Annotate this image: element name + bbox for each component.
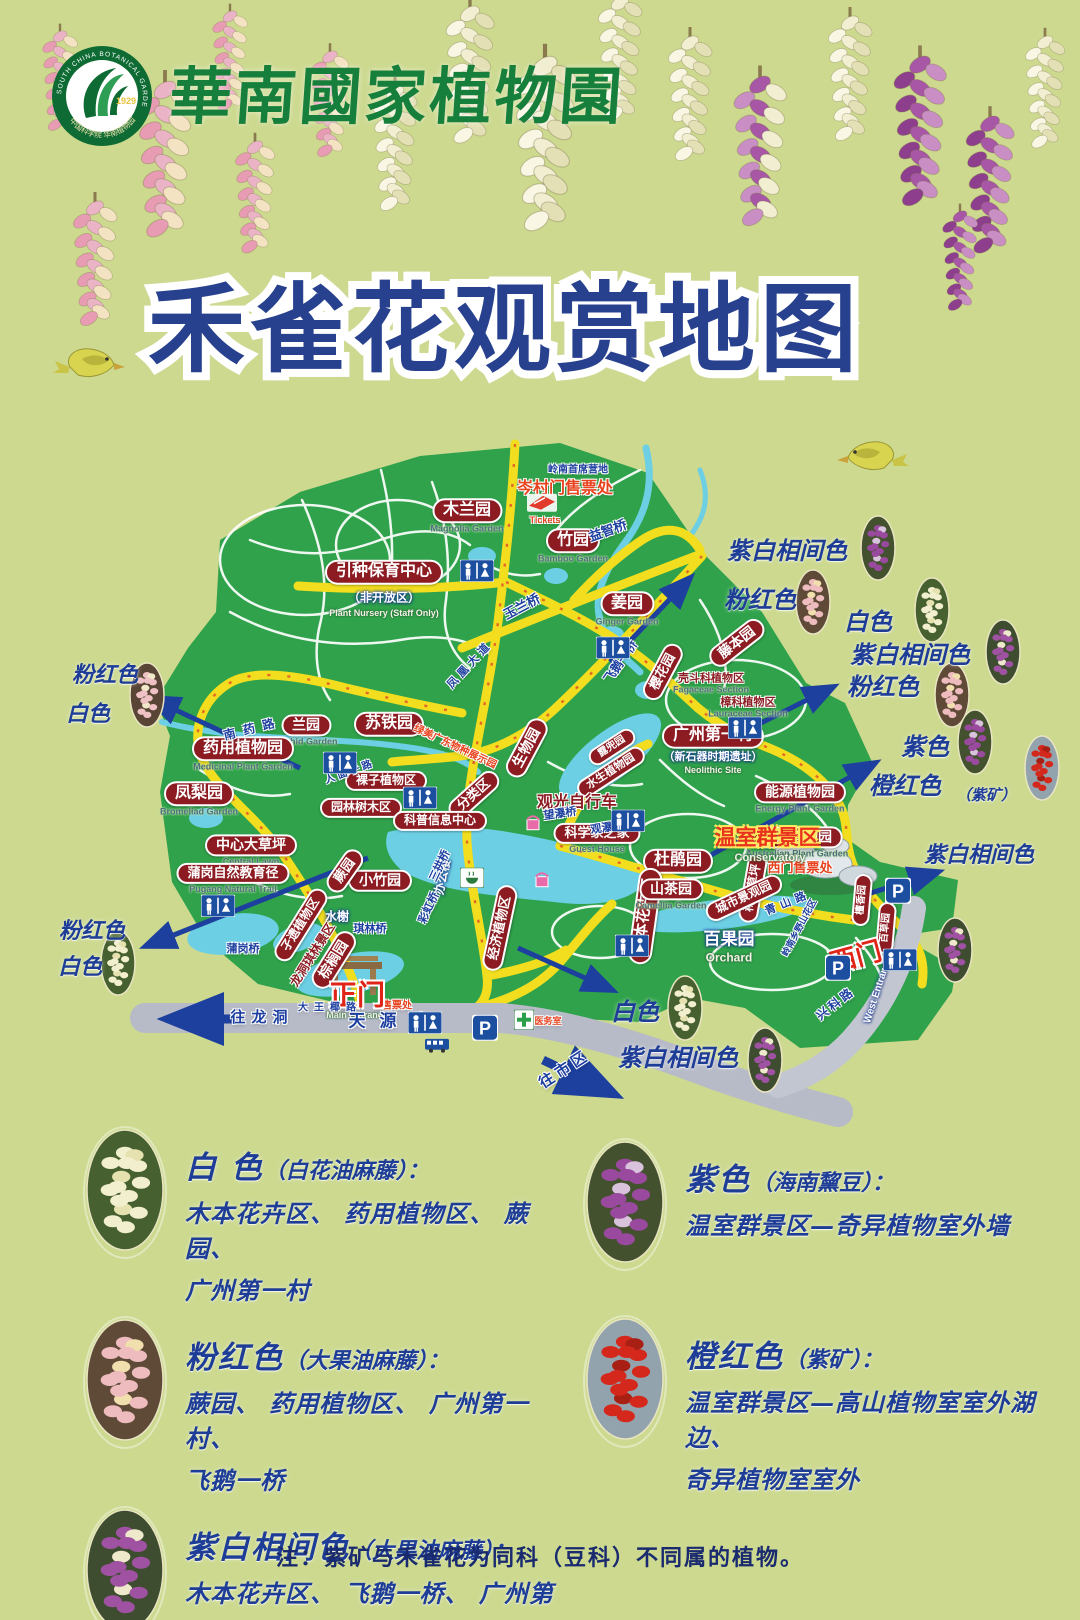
map-label-pill-text: 藤本园: [705, 614, 769, 671]
map-label-note: 粉红色: [72, 663, 138, 687]
flower-photo-red: [587, 1319, 663, 1439]
toilet-icon: [611, 810, 645, 837]
toilet-icon: [728, 717, 762, 744]
legend-color-word: 白 色: [185, 1150, 264, 1186]
legend-locations: 温室群景区—奇异植物室外墙: [685, 1206, 1010, 1241]
legend-text: 粉红色（大果油麻藤）：蕨园、 药用植物区、 广州第一村、飞鹅一桥: [185, 1318, 565, 1496]
map-label-english: Guest House: [553, 845, 640, 855]
legend-color-word: 橙红色: [685, 1339, 784, 1375]
map-label-pill-text: 山茶园: [639, 878, 703, 900]
map-label-pill: 姜园Ginger Garden: [595, 591, 658, 626]
toilet-icon: [403, 787, 437, 814]
map-label-note: 紫白相间色: [727, 538, 847, 564]
legend-locations: 一村、 西门停车场: [185, 1616, 554, 1620]
map-label-pill: 生物园: [502, 714, 552, 781]
parking-icon: P: [885, 878, 911, 909]
map-label-note: 紫白相间色: [924, 843, 1034, 867]
legend-flower-photo: [85, 1318, 165, 1447]
clinic-icon: [514, 1010, 534, 1035]
map-label-pill: 小竹园: [348, 870, 412, 892]
map-label-pill: 蒲岗自然教育径Pugang Natural Trail: [176, 863, 289, 895]
legend-row: 粉红色（大果油麻藤）：蕨园、 药用植物区、 广州第一村、飞鹅一桥: [85, 1318, 565, 1496]
flower-photo-pink: [87, 1320, 163, 1440]
map-label-blue: 兴科路: [814, 985, 858, 1023]
toilet-icon: [408, 1012, 442, 1039]
map-label-english: Ginger Garden: [595, 617, 658, 627]
map-label-note: 粉红色: [724, 587, 796, 613]
legend-text: 白 色（白花油麻藤）：木本花卉区、 药用植物区、 蕨园、广州第一村: [185, 1128, 565, 1306]
map-label-pill: 园林树木区: [320, 798, 402, 818]
map-label-pill-text: 中心大草坪: [205, 834, 297, 856]
legend-text: 紫色（海南黧豆）：温室群景区—奇异植物室外墙: [685, 1140, 1010, 1241]
flower-photo-purple: [587, 1142, 663, 1262]
parking-icon: P: [472, 1015, 498, 1046]
map-label-pill: 药用植物园Medicinal Plant Garden: [192, 736, 294, 771]
flower-photo-white: [87, 1130, 163, 1250]
map-label-red: 壳斗科植物区Fagaceae Section: [673, 673, 749, 696]
legend-locations: 广州第一村: [185, 1271, 565, 1306]
map-label-white: （非开放区）: [348, 591, 420, 604]
map-label-orange: 医务室: [534, 1017, 561, 1027]
poster: 木兰园Magnolia Garden竹园Bamboo Garden姜园Ginge…: [0, 0, 1080, 1620]
map-label-cons: 温室群景区: [715, 826, 820, 849]
map-label-note: 橙红色: [869, 773, 941, 799]
map-label-pill: 经济植物区: [481, 883, 520, 973]
map-label-pill-text: 能源植物园: [754, 781, 846, 803]
legend-row: 白 色（白花油麻藤）：木本花卉区、 药用植物区、 蕨园、广州第一村: [85, 1128, 565, 1306]
map-label-blue: 琪林桥: [354, 923, 387, 935]
legend-right-column: 紫色（海南黧豆）：温室群景区—奇异植物室外墙橙红色（紫矿）：温室群景区—高山植物…: [585, 1140, 1065, 1507]
map-label-english: Medicinal Plant Garden: [192, 762, 294, 772]
svg-text:1929: 1929: [116, 96, 136, 106]
map-label-pill-text: 姜园: [600, 591, 654, 616]
map-label-note: 紫白相间色: [850, 642, 970, 668]
legend-species: （紫矿）：: [784, 1347, 883, 1373]
legend-species: （白花油麻藤）：: [264, 1158, 429, 1184]
parking-icon: P: [825, 955, 851, 986]
map-label-note: （紫矿）: [956, 787, 1016, 804]
map-label-english: Pugang Natural Trail: [176, 885, 289, 895]
map-label-pill-text: 园林树木区: [320, 798, 402, 818]
map-label-pill-text: 凤梨园: [164, 781, 234, 806]
map-label-pill-text: 檀香园: [851, 873, 873, 926]
toilet-icon: [460, 560, 494, 587]
map-label-blue: 往龙洞: [230, 1010, 293, 1027]
shop-icon: [526, 815, 540, 836]
map-label-note: 白色: [611, 999, 659, 1025]
legend-flower-photo: [585, 1317, 665, 1446]
map-label-english: Energy Plant Garden: [754, 805, 846, 815]
map-label-english: Camellia Garden: [635, 902, 706, 912]
map-label-english: Bromeliad Garden: [160, 807, 238, 817]
ticket-icon: [525, 492, 559, 519]
map-label-blue: 彩虹桥: [417, 890, 442, 925]
garden-brand-title: 華南國家植物園: [167, 46, 628, 136]
toilet-icon: [596, 637, 630, 664]
map-label-pill-text: 引种保育中心: [325, 560, 443, 585]
map-label-engw: Conservatory: [735, 852, 806, 864]
map-label-note: 粉红色: [847, 674, 919, 700]
map-label-engw: Neolithic Site: [684, 766, 741, 776]
map-label-note: 紫色: [901, 734, 949, 760]
map-label-engw: Plant Nursery (Staff Only): [329, 609, 439, 619]
map-label-blue: 大王椰路: [298, 1003, 362, 1014]
map-label-pill-text: 兰园: [281, 714, 331, 736]
map-label-pill: 山茶园Camellia Garden: [635, 878, 706, 911]
page-title-text: 禾雀花观赏地图: [0, 250, 1010, 391]
map-label-blue: 凤凰大道: [445, 639, 495, 691]
map-label-note: 白色: [844, 609, 892, 635]
legend-locations: 木本花卉区、 药用植物区、 蕨园、: [185, 1194, 565, 1264]
map-label-note: 紫白相间色: [618, 1045, 738, 1071]
footnote: 注：紫矿与禾雀花为同科（豆科）不同属的植物。: [0, 1540, 1080, 1572]
map-label-pill: 木兰园Magnolia Garden: [430, 498, 503, 533]
map-label-pill-text: 经济植物区: [481, 883, 520, 973]
legend-species: （海南黧豆）：: [751, 1170, 894, 1196]
legend-color-word: 粉红色: [185, 1340, 284, 1376]
map-label-blue: 蒲岗桥: [227, 943, 260, 955]
legend-species: （大果油麻藤）：: [284, 1348, 449, 1374]
map-label-note: 白色: [66, 702, 110, 726]
map-label-pill: 科普信息中心: [393, 811, 487, 831]
map-label-english: Bamboo Garden: [538, 554, 608, 564]
toilet-icon: [323, 752, 357, 779]
legend-locations: 飞鹅一桥: [185, 1461, 565, 1496]
map-label-pill: 檀香园: [851, 873, 873, 926]
map-label-pill-text: 木兰园: [432, 498, 502, 523]
legend-color-word: 紫色: [685, 1162, 751, 1198]
shop-icon: [535, 872, 549, 893]
svg-text:P: P: [479, 1019, 491, 1039]
tea-icon: [460, 868, 484, 893]
map-label-engw: Orchard: [706, 951, 753, 964]
map-label-english: Magnolia Garden: [430, 524, 503, 534]
legend-locations: 温室群景区—高山植物室室外湖边、: [685, 1383, 1065, 1453]
map-label-note: 白色: [58, 955, 102, 979]
map-label-white: （新石器时期遗址）: [664, 751, 763, 763]
toilet-icon: [615, 935, 649, 962]
legend-flower-photo: [85, 1128, 165, 1257]
map-label-english: Fagaceae Section: [673, 686, 749, 696]
svg-text:P: P: [892, 882, 904, 902]
map-label-pill: 凤梨园Bromeliad Garden: [160, 781, 238, 816]
map-label-blue: 岭南首席营地: [548, 465, 608, 476]
legend-locations: 蕨园、 药用植物区、 广州第一村、: [185, 1384, 565, 1454]
map-label-pill-text: 药用植物园: [192, 736, 294, 761]
map-label-pill-text: 小竹园: [348, 870, 412, 892]
map-label-pill-text: 科普信息中心: [393, 811, 487, 831]
toilet-icon: [201, 895, 235, 922]
map-label-blue: 玉兰桥: [501, 592, 542, 623]
map-label-pill: 能源植物园Energy Plant Garden: [754, 781, 846, 814]
legend-locations: 奇异植物室室外: [685, 1460, 1065, 1495]
map-label-blue: 往市区: [537, 1048, 594, 1093]
map-label-pill: 引种保育中心: [325, 560, 443, 585]
map-label-pill-text: 蒲岗自然教育径: [176, 863, 289, 884]
map-label-pill: 藤本园: [705, 614, 769, 671]
map-label-orange: 绿美广东物种展示园: [412, 723, 498, 771]
map-label-white: 百果园: [704, 931, 755, 950]
legend-locations: 木本花卉区、 飞鹅一桥、 广州第: [185, 1574, 554, 1609]
map-label-pill-text: 生物园: [502, 714, 552, 781]
svg-text:P: P: [832, 959, 844, 979]
map-label-note: 粉红色: [59, 919, 125, 943]
bus-icon: [425, 1039, 449, 1058]
legend-text: 橙红色（紫矿）：温室群景区—高山植物室室外湖边、奇异植物室室外: [685, 1317, 1065, 1495]
legend-row: 紫色（海南黧豆）：温室群景区—奇异植物室外墙: [585, 1140, 1065, 1269]
legend-flower-photo: [585, 1140, 665, 1269]
garden-logo: 1929 SOUTH CHINA BOTANICAL GARDEN 中国科学院 …: [40, 34, 170, 164]
toilet-icon: [883, 949, 917, 976]
legend-row: 橙红色（紫矿）：温室群景区—高山植物室室外湖边、奇异植物室室外: [585, 1317, 1065, 1495]
